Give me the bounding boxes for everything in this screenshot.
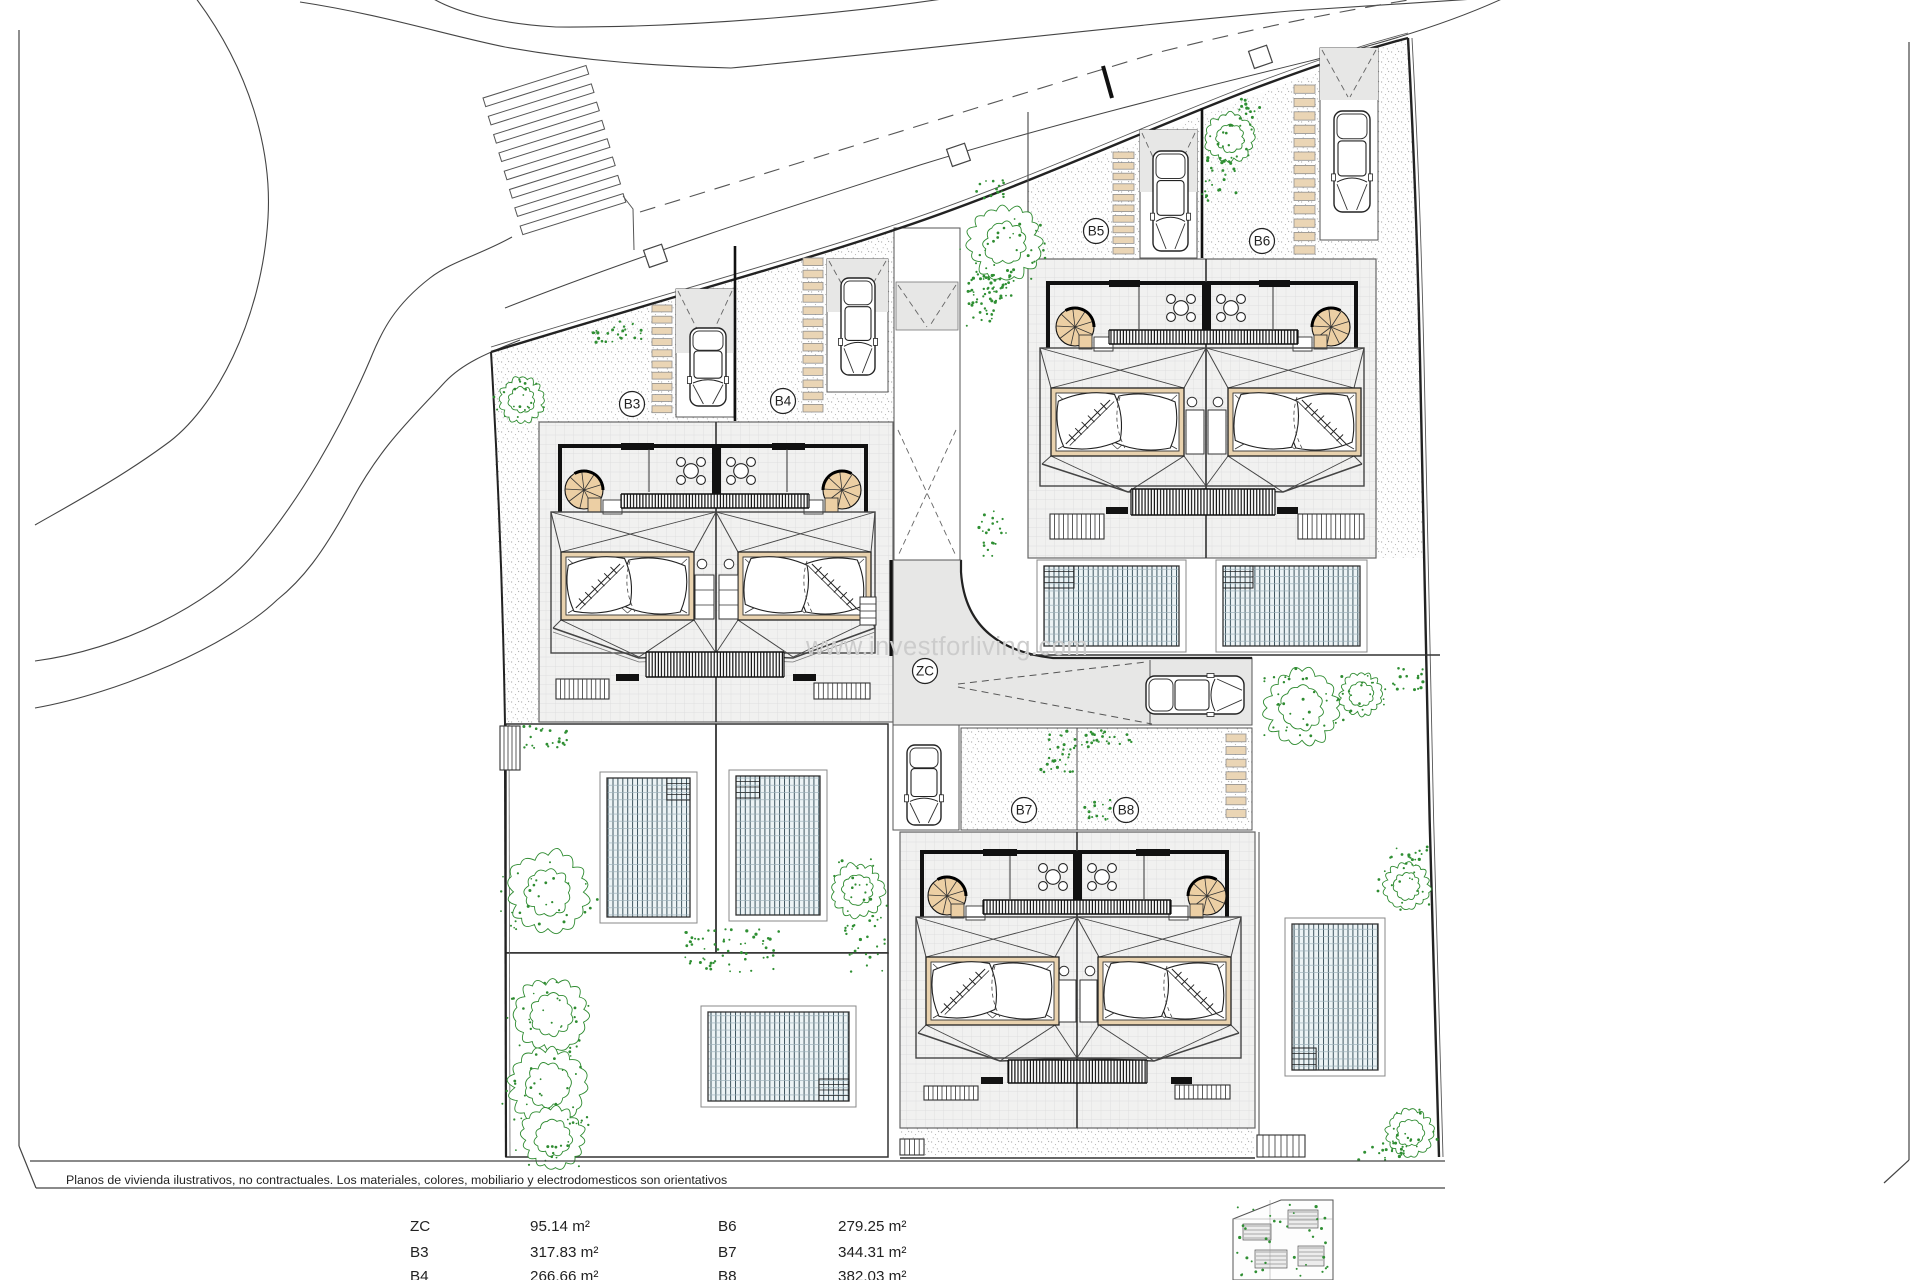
svg-text:279.25 m²: 279.25 m² xyxy=(838,1218,906,1235)
svg-text:www.investforliving.com: www.investforliving.com xyxy=(805,633,1088,661)
svg-text:317.83 m²: 317.83 m² xyxy=(530,1244,598,1261)
svg-text:ZC: ZC xyxy=(916,664,934,679)
svg-text:266.66 m²: 266.66 m² xyxy=(530,1268,598,1280)
svg-text:382.03 m²: 382.03 m² xyxy=(838,1268,906,1280)
svg-text:B8: B8 xyxy=(718,1268,737,1280)
svg-text:B7: B7 xyxy=(718,1244,737,1261)
svg-text:95.14 m²: 95.14 m² xyxy=(530,1218,590,1235)
svg-text:ZC: ZC xyxy=(410,1218,430,1235)
svg-text:344.31 m²: 344.31 m² xyxy=(838,1244,906,1261)
svg-text:Planos de vivienda ilustrativo: Planos de vivienda ilustrativos, no cont… xyxy=(66,1173,727,1187)
svg-text:B8: B8 xyxy=(1118,803,1135,818)
svg-text:B5: B5 xyxy=(1088,224,1105,239)
svg-text:B6: B6 xyxy=(718,1218,737,1235)
svg-text:B7: B7 xyxy=(1016,803,1033,818)
svg-text:B3: B3 xyxy=(624,397,641,412)
svg-text:B3: B3 xyxy=(410,1244,429,1261)
svg-text:B4: B4 xyxy=(775,394,792,409)
svg-text:B4: B4 xyxy=(410,1268,429,1280)
svg-text:B6: B6 xyxy=(1254,234,1271,249)
